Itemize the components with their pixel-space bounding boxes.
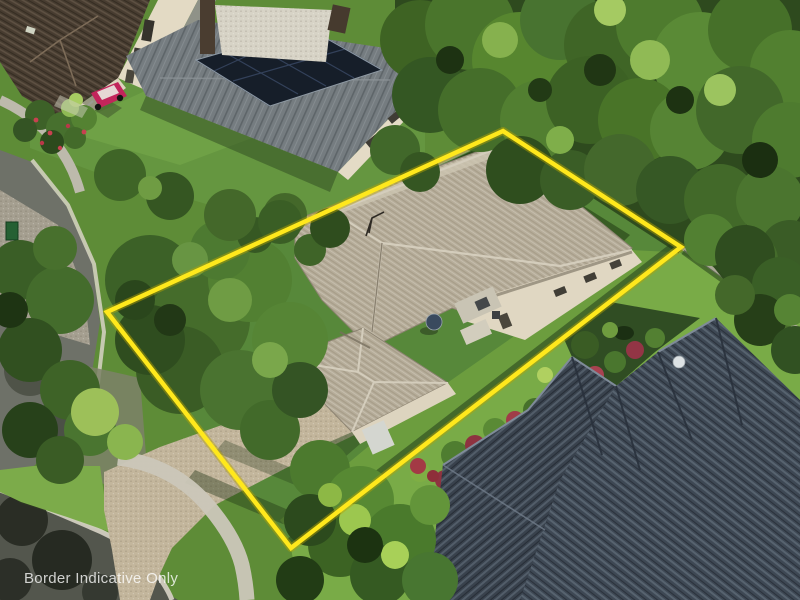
neighbor-satellite-dish (673, 356, 685, 368)
aerial-photo: Border Indicative Only (0, 0, 800, 600)
watermark-text: Border Indicative Only (24, 570, 178, 587)
timber-fence-dark (200, 0, 215, 54)
satellite-dish (426, 314, 442, 330)
aerial-photo-canvas: Border Indicative Only (0, 0, 800, 600)
utility-box (6, 222, 18, 240)
